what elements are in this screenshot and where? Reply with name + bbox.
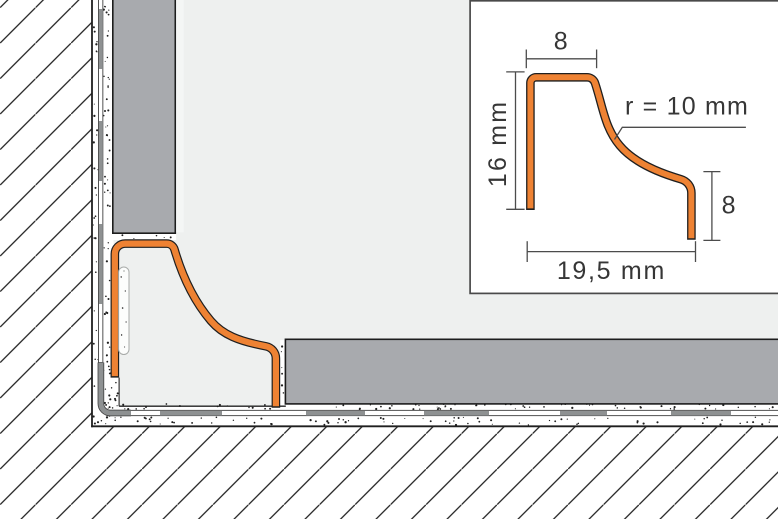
svg-text:8: 8 bbox=[554, 28, 568, 56]
svg-text:19,5 mm: 19,5 mm bbox=[557, 257, 666, 285]
svg-text:16 mm: 16 mm bbox=[484, 100, 512, 187]
svg-text:8: 8 bbox=[722, 191, 736, 219]
svg-text:r = 10 mm: r = 10 mm bbox=[625, 92, 749, 120]
